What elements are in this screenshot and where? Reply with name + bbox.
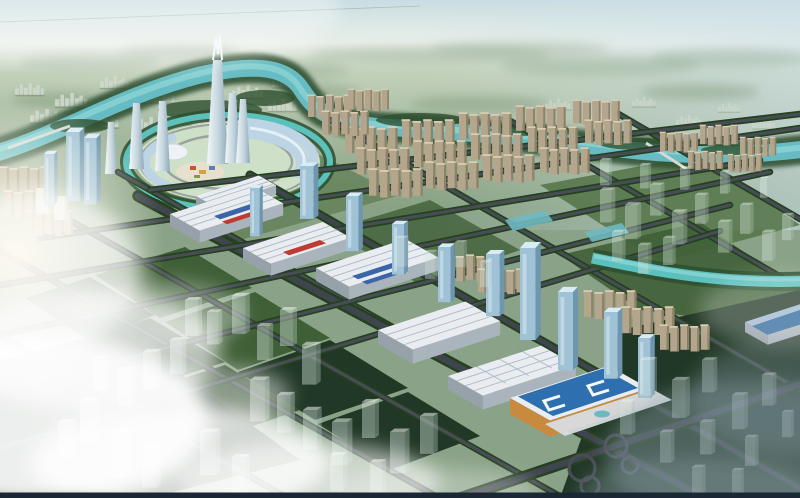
ghost-building (650, 182, 664, 215)
ghost-building (362, 399, 379, 438)
glass-tower (520, 242, 541, 340)
glass-tower (346, 192, 363, 251)
bottom-edge-bar (0, 493, 800, 498)
ghost-building (612, 230, 626, 261)
glass-tower (604, 308, 622, 379)
glass-tower (250, 185, 263, 236)
cloud (170, 367, 290, 423)
plaza-pavilion (190, 166, 196, 170)
ghost-building (640, 357, 657, 396)
residential-row (426, 161, 479, 190)
ghost-building (663, 236, 676, 265)
ghost-building (395, 236, 409, 267)
masterplan-rendering (0, 0, 800, 498)
ghost-building (640, 163, 651, 188)
rendering-canvas (0, 0, 800, 498)
residential-row (540, 147, 590, 174)
residential-row (585, 119, 632, 145)
ghost-building (280, 307, 297, 346)
ghost-building (762, 230, 776, 261)
residential-row (483, 154, 535, 182)
residential-row (322, 110, 369, 136)
ghost-building (600, 158, 612, 185)
ghost-building (257, 323, 273, 360)
plaza-pavilion (194, 175, 200, 178)
glass-tower (300, 163, 318, 219)
ghost-building (480, 260, 492, 287)
ghost-building (760, 176, 769, 197)
residential-row (688, 151, 723, 170)
glass-tower (438, 243, 455, 302)
ghost-building (302, 342, 321, 385)
ghost-building (740, 203, 754, 234)
plaza-pavilion (199, 170, 206, 174)
ghost-building (455, 240, 467, 267)
glass-tower (558, 287, 578, 370)
residential-row (369, 168, 423, 197)
residential-row (348, 89, 389, 111)
ghost-building (600, 187, 615, 222)
ghost-building (720, 170, 730, 193)
ghost-building (420, 413, 438, 454)
residential-row (660, 132, 698, 153)
plaza-pavilion (209, 166, 215, 170)
residential-row (700, 125, 738, 146)
ghost-building (782, 213, 794, 240)
cloud (65, 280, 245, 350)
ghost-building (718, 219, 732, 252)
fountain (594, 411, 610, 418)
residential-row (740, 137, 777, 157)
ghost-building (625, 202, 641, 239)
ghost-building (695, 193, 709, 224)
ghost-building (680, 166, 690, 189)
ghost-building (638, 243, 652, 274)
residential-row (728, 154, 762, 173)
ghost-building (425, 250, 438, 279)
residential-row (660, 324, 710, 351)
